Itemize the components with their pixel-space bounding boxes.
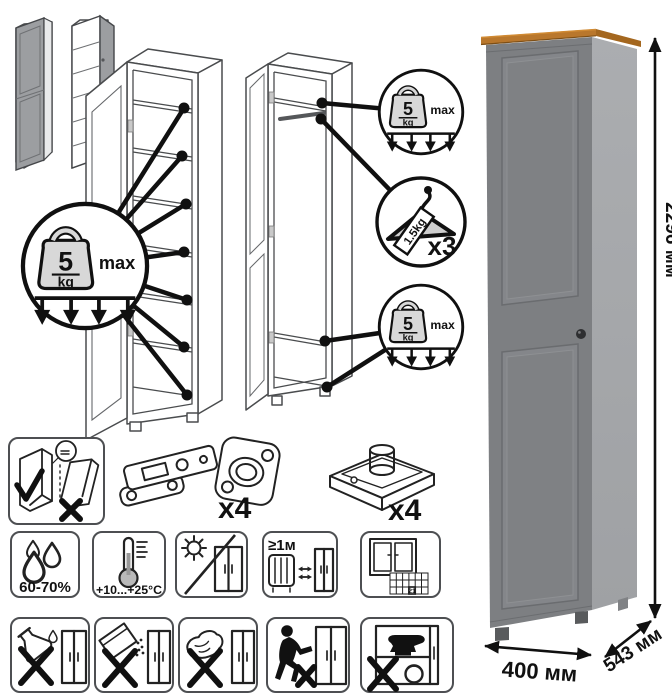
care-icon-no-direct-sunlight [175,531,248,598]
height-dimension: 2296 мм [661,202,672,278]
care-icon-humidity: 60-70% [10,531,80,598]
wardrobe-icon [62,631,86,683]
humidity-label: 60-70% [19,579,71,596]
care-icon-no-abrasives [94,617,174,693]
depth-dimension: 543 мм [600,624,666,677]
care-icon-heat-distance: ≥1м [262,531,338,598]
water-drops-icon [24,541,60,583]
radiator-icon [269,555,294,592]
foot-count: x4 [388,494,422,527]
hanger-load-badge: 1.5kg x3 [377,178,465,266]
cabinet-photo [481,29,641,641]
wardrobe-icon [315,549,333,591]
product-render: 2296 мм 400 мм 543 мм [455,0,672,700]
width-arrow [485,646,591,655]
double-arrow-icon [298,567,312,580]
care-icon-no-dragging [266,617,350,693]
door-knob [576,329,586,339]
care-icon-no-solvents [10,617,90,693]
temperature-label: +10...+25°C [96,583,162,597]
care-icon-temperature: +10...+25°C [92,531,166,598]
sun-icon [182,536,206,560]
wet-rag-icon [184,628,226,663]
kettlebell-icon [406,666,423,683]
assembly-diagram: 5 kg max [0,0,470,452]
cabinet-foot [575,611,588,624]
drop-icon [49,631,57,643]
care-icon-no-overload [360,617,454,693]
wardrobe-cabinet-drawing [246,53,352,410]
wardrobe-icon [232,631,254,683]
care-icon-anchor-to-wall [8,437,105,525]
hinge-illustration: x4 [118,428,288,524]
x-icon [298,667,314,685]
wardrobe-icon [316,627,346,684]
wardrobe-icon [148,631,170,683]
ventilation-day-label: 21 [408,588,416,595]
care-icon-no-wet-cloth [178,617,258,693]
care-icon-ventilation: 21 [360,531,441,598]
open-window-icon [370,539,416,575]
foot-illustration: x4 [312,426,454,524]
x-icon [105,651,135,685]
cabinet-foot [495,627,509,641]
thumbnail-cabinet-closed [16,18,52,170]
distance-label: ≥1м [268,537,296,554]
hinge-count: x4 [218,492,252,525]
furniture-instruction-sheet: 5 kg max [0,0,672,700]
thermometer-icon [120,538,148,587]
hanger-count: x3 [428,231,457,261]
width-dimension: 400 мм [501,656,578,686]
